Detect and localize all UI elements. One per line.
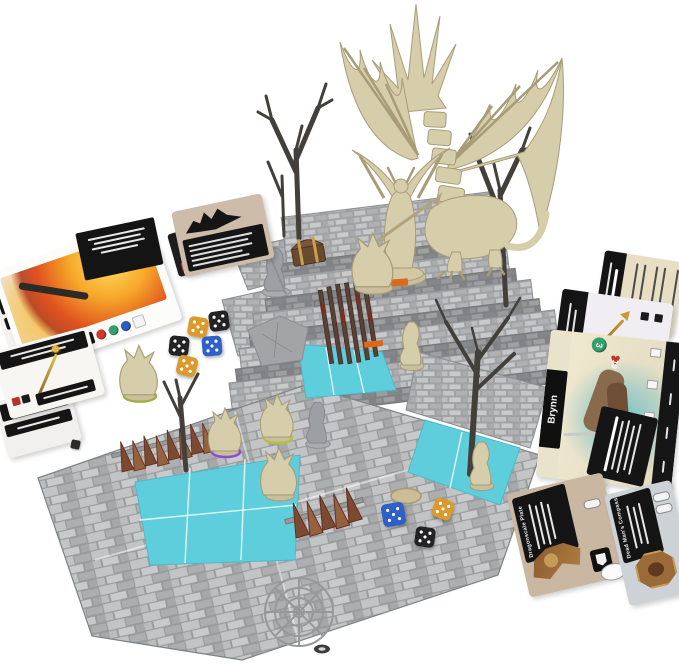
health-heart-icon: ♥ 10 (605, 350, 625, 370)
blue-gem-icon (120, 320, 133, 333)
slot-pill (652, 490, 671, 503)
slot-pill (655, 502, 674, 515)
slot-pill (583, 498, 602, 511)
hero-name: Brynn (546, 394, 560, 424)
edge-emblem (314, 645, 330, 654)
small-dark-token (70, 439, 81, 450)
orange-die (186, 315, 209, 338)
product-photo: .fill-bone{fill:var(--bone,#d6cdaa);stro… (0, 0, 679, 665)
blue-die (201, 335, 223, 357)
monster-miniature-center (261, 448, 297, 501)
blue-die (380, 501, 407, 528)
card-icons (638, 308, 665, 329)
green-gem-icon (107, 324, 120, 337)
black-die-icon (654, 314, 663, 323)
circular-mosaic (265, 578, 333, 646)
black-die (414, 526, 437, 549)
round-disc-token (391, 489, 421, 504)
health-value: 10 (605, 358, 624, 370)
compass-face (647, 561, 666, 578)
black-die-icon (21, 394, 31, 404)
green-stat-value: 3 (594, 341, 605, 348)
black-die (208, 310, 231, 333)
red-gem-icon (95, 328, 108, 341)
stat-box (650, 348, 662, 358)
monster-miniature-large (352, 233, 393, 294)
monster-miniature-far-left (120, 345, 158, 401)
monster-miniature-purple-base (208, 408, 241, 457)
stat-chip-icon (131, 314, 146, 329)
monster-miniature-yellow-base (260, 394, 293, 443)
hero-board-brynn: Brynn 3 ♥ 10 (536, 329, 679, 490)
black-die-icon (640, 312, 649, 321)
red-die-icon (11, 397, 21, 407)
black-die (168, 335, 190, 357)
card-icons (9, 390, 33, 413)
stat-box (646, 380, 658, 390)
